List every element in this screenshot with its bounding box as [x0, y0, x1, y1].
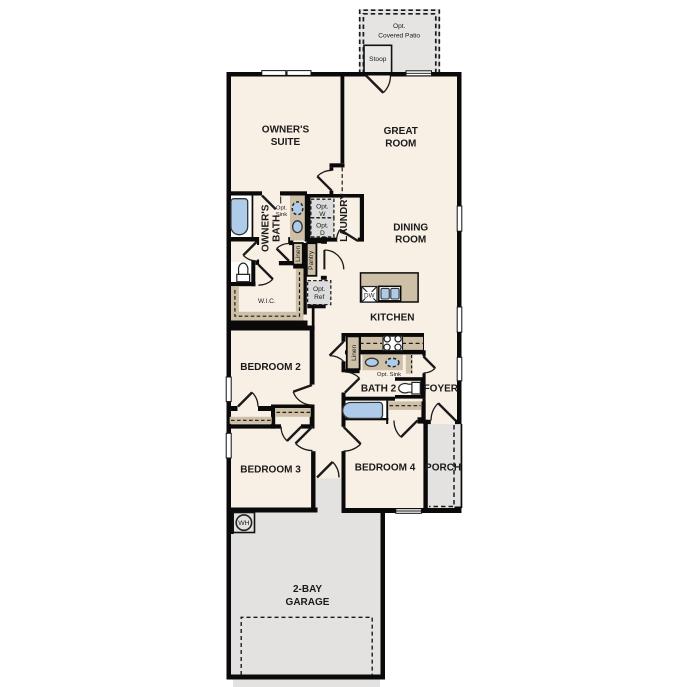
- svg-text:DINING: DINING: [393, 222, 428, 233]
- svg-text:ROOM: ROOM: [385, 138, 416, 149]
- svg-text:KITCHEN: KITCHEN: [370, 313, 414, 324]
- svg-text:WH: WH: [238, 520, 249, 527]
- svg-text:Sink: Sink: [276, 212, 288, 218]
- svg-text:W.I.C.: W.I.C.: [258, 298, 276, 305]
- svg-text:DW: DW: [364, 293, 375, 300]
- svg-text:PORCH: PORCH: [425, 462, 461, 473]
- svg-text:BATH 2: BATH 2: [361, 384, 397, 395]
- svg-text:FOYER: FOYER: [424, 384, 459, 395]
- svg-text:Opt.: Opt.: [316, 223, 329, 230]
- svg-text:ROOM: ROOM: [395, 234, 426, 245]
- svg-text:D: D: [320, 230, 325, 237]
- svg-text:BEDROOM 4: BEDROOM 4: [355, 462, 416, 473]
- svg-text:Opt.: Opt.: [393, 23, 406, 30]
- svg-text:BATH: BATH: [272, 215, 283, 242]
- svg-text:BEDROOM 3: BEDROOM 3: [240, 465, 301, 476]
- svg-text:Opt.: Opt.: [313, 286, 326, 293]
- svg-text:Ref: Ref: [314, 294, 324, 301]
- svg-text:Opt. Sink: Opt. Sink: [377, 372, 401, 378]
- svg-text:Covered Patio: Covered Patio: [378, 33, 420, 40]
- svg-text:Stoop: Stoop: [369, 56, 387, 63]
- svg-text:Opt.: Opt.: [316, 204, 329, 211]
- svg-text:GARAGE: GARAGE: [286, 597, 330, 608]
- svg-text:W: W: [319, 211, 326, 218]
- svg-text:GREAT: GREAT: [384, 126, 418, 137]
- svg-text:Opt.: Opt.: [276, 206, 287, 212]
- svg-text:LAUNDRY: LAUNDRY: [339, 193, 350, 242]
- svg-text:OWNER'S: OWNER'S: [261, 204, 272, 252]
- svg-text:Linen: Linen: [295, 245, 302, 261]
- svg-text:2-BAY: 2-BAY: [293, 584, 322, 595]
- svg-text:SUITE: SUITE: [271, 137, 301, 148]
- svg-text:BEDROOM 2: BEDROOM 2: [240, 362, 301, 373]
- svg-text:OWNER'S: OWNER'S: [262, 124, 310, 135]
- svg-text:Pantry: Pantry: [308, 250, 315, 270]
- svg-text:Linen: Linen: [351, 344, 358, 360]
